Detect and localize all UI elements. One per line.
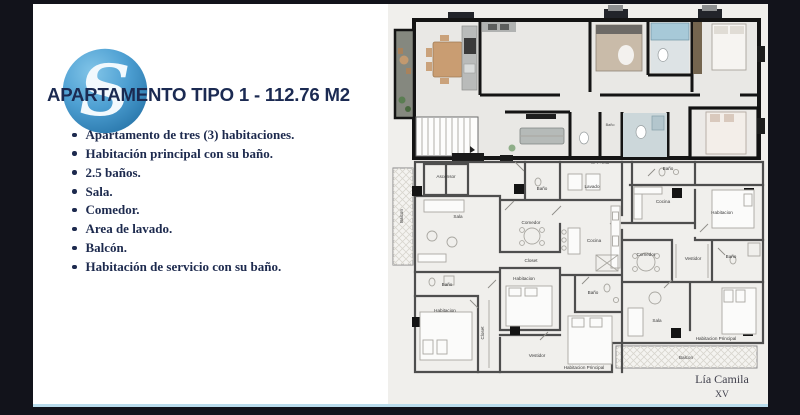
feature-text: Sala. [86,184,113,200]
column-stub [757,118,765,134]
bullet-dot [72,246,77,251]
list-item: Apartamento de tres (3) habitaciones. [72,127,294,143]
room-label: Comedor [522,220,541,225]
room-label: Habitacion [711,210,733,215]
feature-text: Habitación principal con su baño. [86,146,273,162]
list-item: Balcón. [72,240,294,256]
watermark: Lía Camila XV [695,372,749,400]
room-label: Baño [537,186,548,191]
list-item: Area de lavado. [72,221,294,237]
slide: S APARTAMENTO TIPO 1 - 112.76 M2 Apartam… [33,4,768,404]
bedroom2-rendered [712,24,746,70]
feature-text: Comedor. [86,202,140,218]
room-label: Balcon [399,209,404,223]
room-label: Habitacion [434,308,456,313]
room-label: Sala [652,318,662,323]
closet-strip-rendered [693,22,702,74]
features-list: Apartamento de tres (3) habitaciones. Ha… [72,127,294,278]
room-label: Baño [726,254,737,259]
room-label: Habitacion Principal [564,365,605,370]
stair-wall-block [452,153,484,162]
rendered-plan: Baño NPT +0.48 [395,5,765,165]
bullet-dot [72,265,77,270]
list-item: Habitación de servicio con su baño. [72,259,294,275]
watermark-roman: XV [715,390,729,400]
bullet-dot [72,208,77,213]
bullet-dot [72,189,77,194]
room-label: Lavado [584,184,600,189]
room-label: Closet [480,326,485,340]
room-label: Habitacion Principal [696,336,737,341]
watermark-name: Lía Camila [695,372,749,386]
room-label: Vestidor [529,353,546,358]
column-stub [757,46,765,62]
line-plan: Ascensor Balcon Sala Baño Lavado Comedor… [393,162,763,400]
bottom-accent-line [33,404,768,407]
feature-text: Area de lavado. [86,221,173,237]
room-label: Vestidor [685,256,702,261]
room-label: Comedor [637,252,656,257]
page-title: APARTAMENTO TIPO 1 - 112.76 M2 [47,84,392,106]
floor-plan-svg: Baño NPT +0.48 [388,4,768,404]
floor-plan-panel: Baño NPT +0.48 [388,4,768,404]
room-label: Baño [442,282,453,287]
room-label: Sala [453,214,463,219]
bedroom1-rendered [596,25,642,71]
room-label: Habitacion [513,276,535,281]
list-item: Comedor. [72,202,294,218]
feature-text: Habitación de servicio con su baño. [86,259,282,275]
powder-room-toilet [580,132,589,144]
presentation-frame: { "slide": { "title": "APARTAMENTO TIPO … [0,0,800,415]
feature-text: 2.5 baños. [86,165,141,181]
feature-text: Balcón. [86,240,128,256]
room-label: Cocina [656,199,671,204]
list-item: Habitación principal con su baño. [72,146,294,162]
bullet-dot [72,151,77,156]
list-item: Sala. [72,184,294,200]
room-label: Closet [524,258,538,263]
list-item: 2.5 baños. [72,165,294,181]
bullet-dot [72,227,77,232]
balcony-rendered [395,30,414,118]
room-label: Baño [663,166,674,171]
feature-text: Apartamento de tres (3) habitaciones. [86,127,295,143]
bathroom1-rendered [651,23,689,73]
stairwell-rendered [416,117,478,156]
bathroom2-rendered [623,113,667,157]
bullet-dot [72,133,77,138]
room-label: Cocina [587,238,602,243]
bedroom3-rendered [690,108,758,158]
room-label: Ascensor [436,174,456,179]
bullet-dot [72,170,77,175]
room-label: Baño [588,290,599,295]
info-panel: S APARTAMENTO TIPO 1 - 112.76 M2 Apartam… [33,4,388,404]
room-label: Balcon [679,355,693,360]
room-label: Baño [606,123,615,127]
